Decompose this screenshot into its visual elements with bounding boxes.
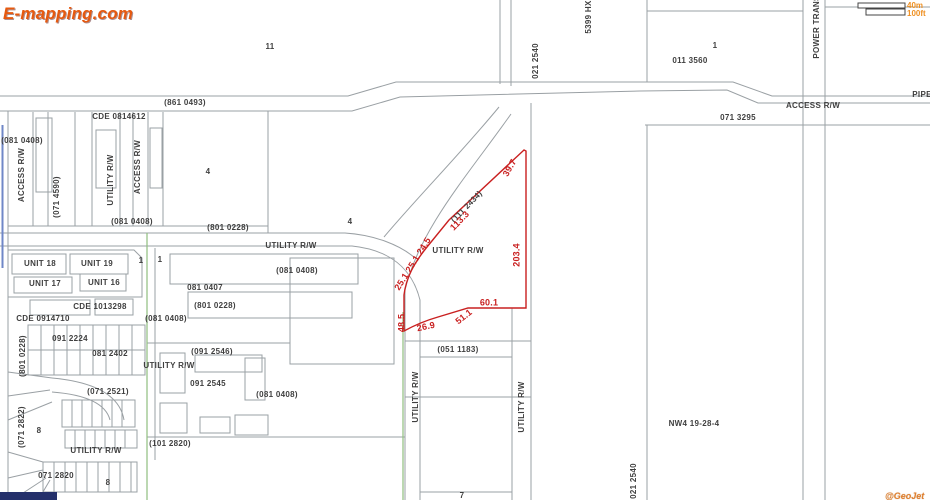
- map-label: 071 3295: [720, 114, 756, 122]
- map-label: UTILITY R/W: [518, 381, 526, 432]
- map-label: 011 3560: [672, 57, 707, 65]
- map-label: (091 2546): [191, 348, 233, 356]
- map-label: UTILITY R/W: [70, 447, 121, 455]
- map-label: 4: [348, 218, 353, 226]
- map-label: 7: [460, 492, 465, 500]
- map-label: 60.1: [480, 299, 498, 308]
- map-label: 071 2820: [38, 472, 74, 480]
- map-label: (071 2822): [18, 406, 26, 448]
- map-label: (081 0408): [1, 137, 43, 145]
- map-label: 51.1: [454, 308, 474, 326]
- map-label: UTILITY R/W: [107, 154, 115, 205]
- map-label: (081 0408): [276, 267, 318, 275]
- map-label: 48.5: [398, 314, 407, 332]
- map-label: 5399 HX: [585, 0, 593, 33]
- map-label: 203.4: [513, 243, 522, 267]
- map-label: 021 2540: [630, 463, 638, 499]
- site-logo[interactable]: E-mapping.com: [3, 4, 133, 24]
- map-label: 11: [265, 43, 274, 51]
- map-label: (801 0228): [207, 224, 249, 232]
- map-label: 4: [206, 168, 211, 176]
- map-label: UTILITY R/W: [143, 362, 194, 370]
- map-label: 8: [106, 479, 111, 487]
- map-label: UTILITY R/W: [412, 371, 420, 422]
- map-label: 081 2402: [92, 350, 128, 358]
- map-label: UNIT 16: [88, 279, 120, 287]
- map-label: (071 4590): [53, 176, 61, 218]
- map-label: (051 1183): [437, 346, 478, 354]
- map-label: UTILITY R/W: [265, 242, 316, 250]
- map-label: UNIT 18: [24, 260, 56, 268]
- map-label: (101 2820): [149, 440, 191, 448]
- map-label: 39.7: [502, 158, 519, 178]
- map-label: 1: [158, 256, 163, 264]
- map-label: (801 0228): [194, 302, 236, 310]
- map-label: 021 2540: [532, 43, 540, 79]
- map-label: 8: [37, 427, 42, 435]
- map-label: ACCESS R/W: [18, 148, 26, 202]
- map-label: CDE 0814612: [92, 113, 146, 121]
- map-label: 1: [713, 42, 718, 50]
- map-label: 25.1 25.1 24.5: [393, 236, 433, 292]
- map-label: UNIT 19: [81, 260, 113, 268]
- map-label: UTILITY R/W: [432, 247, 483, 255]
- map-label: (081 0408): [256, 391, 298, 399]
- map-label: (861 0493): [164, 99, 206, 107]
- map-label: (071 2521): [87, 388, 129, 396]
- map-label: 081 0407: [187, 284, 223, 292]
- map-label: ACCESS R/W: [786, 102, 840, 110]
- map-label: (081 0408): [111, 218, 153, 226]
- map-label: ACCESS R/W: [134, 140, 142, 194]
- map-label: CDE 0914710: [16, 315, 70, 323]
- map-label: 113.3: [449, 210, 471, 233]
- map-label: UNIT 17: [29, 280, 61, 288]
- map-label: 091 2545: [190, 380, 226, 388]
- map-label: 091 2224: [52, 335, 88, 343]
- map-labels-layer: 11(861 0493)CDE 0814612(081 0408)ACCESS …: [0, 0, 930, 500]
- map-label: POWER TRANS: [813, 0, 821, 59]
- map-label: NW4 19-28-4: [669, 420, 720, 428]
- geojet-watermark: @GeoJet: [885, 491, 924, 500]
- map-viewer: 11(861 0493)CDE 0814612(081 0408)ACCESS …: [0, 0, 930, 500]
- map-label: CDE 1013298: [73, 303, 127, 311]
- scale-imperial-label: 100ft: [907, 10, 926, 18]
- map-label: (081 0408): [145, 315, 187, 323]
- map-label: PIPE: [912, 91, 930, 99]
- map-label: 1: [139, 257, 144, 265]
- map-label: (801 0228): [19, 335, 27, 377]
- map-label: 26.9: [416, 321, 436, 334]
